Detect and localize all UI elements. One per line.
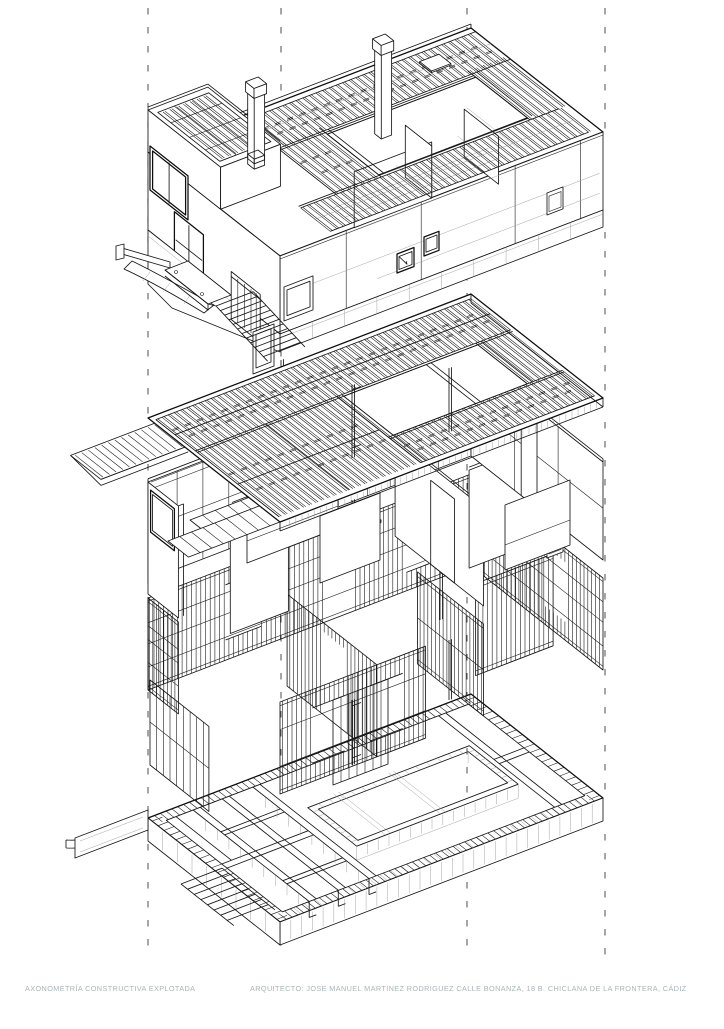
svg-text:ARQUITECTO: JOSE MANUEL MARTIN: ARQUITECTO: JOSE MANUEL MARTINEZ RODRIGU… xyxy=(250,984,687,993)
svg-text:AXONOMETRÍA CONSTRUCTIVA EXPLO: AXONOMETRÍA CONSTRUCTIVA EXPLOTADA xyxy=(25,984,195,993)
